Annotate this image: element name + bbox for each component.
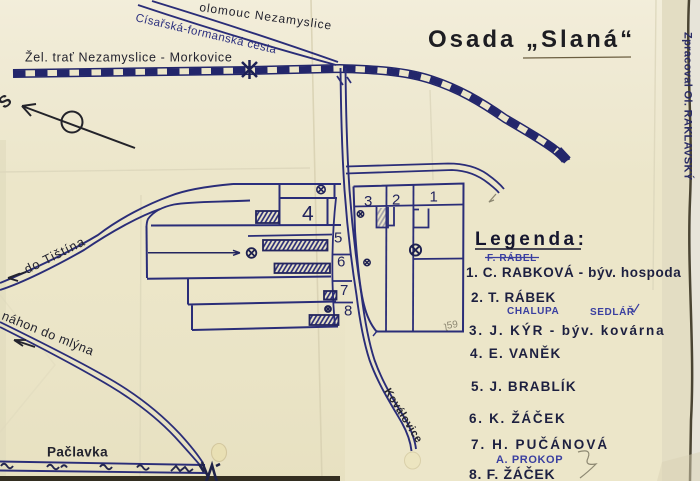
svg-text:3. J. KÝR - býv. kovárna: 3. J. KÝR - býv. kovárna bbox=[469, 323, 665, 338]
svg-text:CHALUPA: CHALUPA bbox=[507, 306, 559, 317]
svg-text:7. H. PUČÁNOVÁ: 7. H. PUČÁNOVÁ bbox=[471, 437, 609, 452]
svg-text:A. PROKOP: A. PROKOP bbox=[496, 454, 563, 466]
svg-text:4: 4 bbox=[302, 203, 314, 226]
svg-text:Legenda:: Legenda: bbox=[475, 229, 587, 250]
svg-text:ʅ59: ʅ59 bbox=[443, 319, 459, 332]
svg-text:5. J. BRABLÍK: 5. J. BRABLÍK bbox=[471, 379, 577, 394]
svg-text:8: 8 bbox=[344, 303, 352, 320]
svg-text:2: 2 bbox=[392, 192, 400, 209]
svg-text:6: 6 bbox=[337, 254, 345, 271]
svg-text:5: 5 bbox=[334, 230, 342, 247]
svg-text:Zpracoval Ol. RAKLAVSKÝ: Zpracoval Ol. RAKLAVSKÝ bbox=[682, 32, 695, 181]
svg-text:1: 1 bbox=[430, 189, 438, 206]
svg-text:3: 3 bbox=[364, 193, 372, 210]
svg-text:4. E. VANĚK: 4. E. VANĚK bbox=[470, 346, 562, 361]
svg-text:7: 7 bbox=[340, 282, 348, 299]
svg-text:6. K. ŽÁČEK: 6. K. ŽÁČEK bbox=[469, 411, 566, 426]
svg-text:1. C. RABKOVÁ - býv. hospoda: 1. C. RABKOVÁ - býv. hospoda bbox=[466, 265, 681, 280]
svg-text:Pačlavka: Pačlavka bbox=[47, 445, 108, 460]
svg-text:Osada „Slaná“: Osada „Slaná“ bbox=[428, 26, 635, 53]
svg-text:8. F. ŽÁČEK: 8. F. ŽÁČEK bbox=[469, 465, 555, 481]
svg-text:2. T. RÁBEK: 2. T. RÁBEK bbox=[471, 290, 556, 305]
svg-text:Žel. trať Nezamyslice - Morkov: Žel. trať Nezamyslice - Morkovice bbox=[25, 50, 232, 65]
svg-text:SEDLÁŘ: SEDLÁŘ bbox=[590, 305, 635, 318]
